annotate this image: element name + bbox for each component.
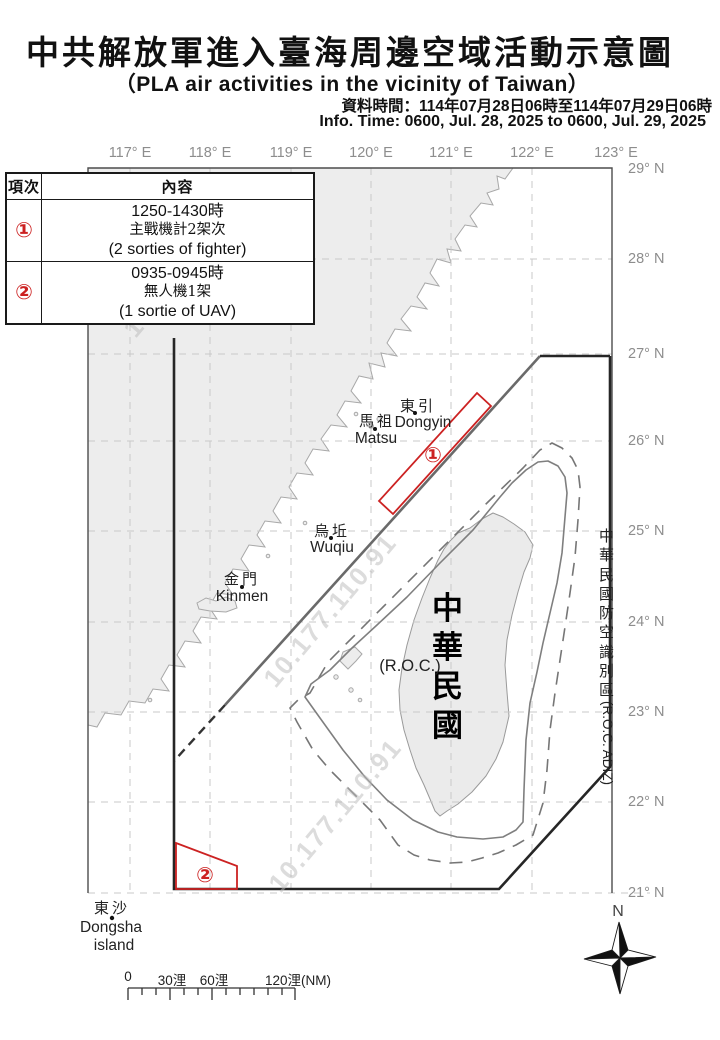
lat-label-29n: 29° N [628,161,664,177]
lat-label-25n: 25° N [628,523,664,539]
lon-label-117e: 117° E [109,145,152,161]
row2-content: 0935-0945時 無人機1架 (1 sortie of UAV) [42,262,315,325]
row1-content: 1250-1430時 主戰機計2架次 (2 sorties of fighter… [42,200,315,262]
activity-marker-2: ② [196,863,214,888]
scale-label-60: 60浬 [200,969,229,989]
table-header-row: 項次 內容 [6,173,314,200]
lon-label-118e: 118° E [189,145,232,161]
lat-label-23n: 23° N [628,704,664,720]
scale-label-30: 30浬 [158,969,187,989]
col-header-item: 項次 [6,173,42,200]
roc-label: (R.O.C.) [379,657,440,676]
lon-label-123e: 123° E [594,145,638,161]
median-line-dashed-extension [174,705,225,761]
lat-label-26n: 26° N [628,433,664,449]
lat-label-21n: 21° N [628,885,664,901]
lat-label-27n: 27° N [628,346,664,362]
pla-activity-map-page: 中共解放軍進入臺海周邊空域活動示意圖 （PLA air activities i… [0,0,720,1040]
row2-number: ② [6,262,42,325]
row2-time: 0935-0945時 [42,264,313,283]
row1-time: 1250-1430時 [42,202,313,221]
place-dongsha-zh: 東沙 [94,897,130,918]
row1-number: ① [6,200,42,262]
adiz-label-en: (R.O.C. ADIZ) [600,701,615,785]
adiz-label-zh: 中華民國防空識別區 [599,527,614,701]
col-header-content: 內容 [42,173,315,200]
lon-label-119e: 119° E [270,145,313,161]
lon-label-121e: 121° E [429,145,473,161]
row1-desc-en: (2 sorties of fighter) [42,240,313,259]
lon-label-120e: 120° E [349,145,393,161]
compass-north-label: N [612,903,624,921]
place-wuqiu-en: Wuqiu [310,539,354,557]
place-dongsha-en1: Dongsha [80,919,142,937]
row1-desc-zh: 主戰機計2架次 [42,221,313,240]
table-row: ① 1250-1430時 主戰機計2架次 (2 sorties of fight… [6,200,314,262]
place-dongyin-zh: 東引 [400,395,436,416]
lat-label-24n: 24° N [628,614,664,630]
place-wuqiu-zh: 烏坵 [314,520,350,541]
place-matsu-en: Matsu [355,430,397,448]
lon-label-122e: 122° E [510,145,554,161]
scale-label-0: 0 [124,969,132,984]
scale-label-120: 120浬(NM) [265,969,331,989]
place-kinmen-zh: 金門 [224,568,260,589]
activity-marker-1: ① [424,443,442,468]
table-row: ② 0935-0945時 無人機1架 (1 sortie of UAV) [6,262,314,325]
compass-rose [584,922,656,994]
place-dongsha-en2: island [94,937,135,955]
lat-label-28n: 28° N [628,251,664,267]
row2-desc-zh: 無人機1架 [42,283,313,302]
scale-bar [128,988,295,1000]
place-kinmen-en: Kinmen [216,588,269,606]
lat-label-22n: 22° N [628,794,664,810]
place-dongyin-en: Dongyin [395,414,452,432]
row2-desc-en: (1 sortie of UAV) [42,302,313,321]
place-matsu-zh: 馬祖 [359,410,395,431]
sortie-table: 項次 內容 ① 1250-1430時 主戰機計2架次 (2 sorties of… [5,172,315,325]
